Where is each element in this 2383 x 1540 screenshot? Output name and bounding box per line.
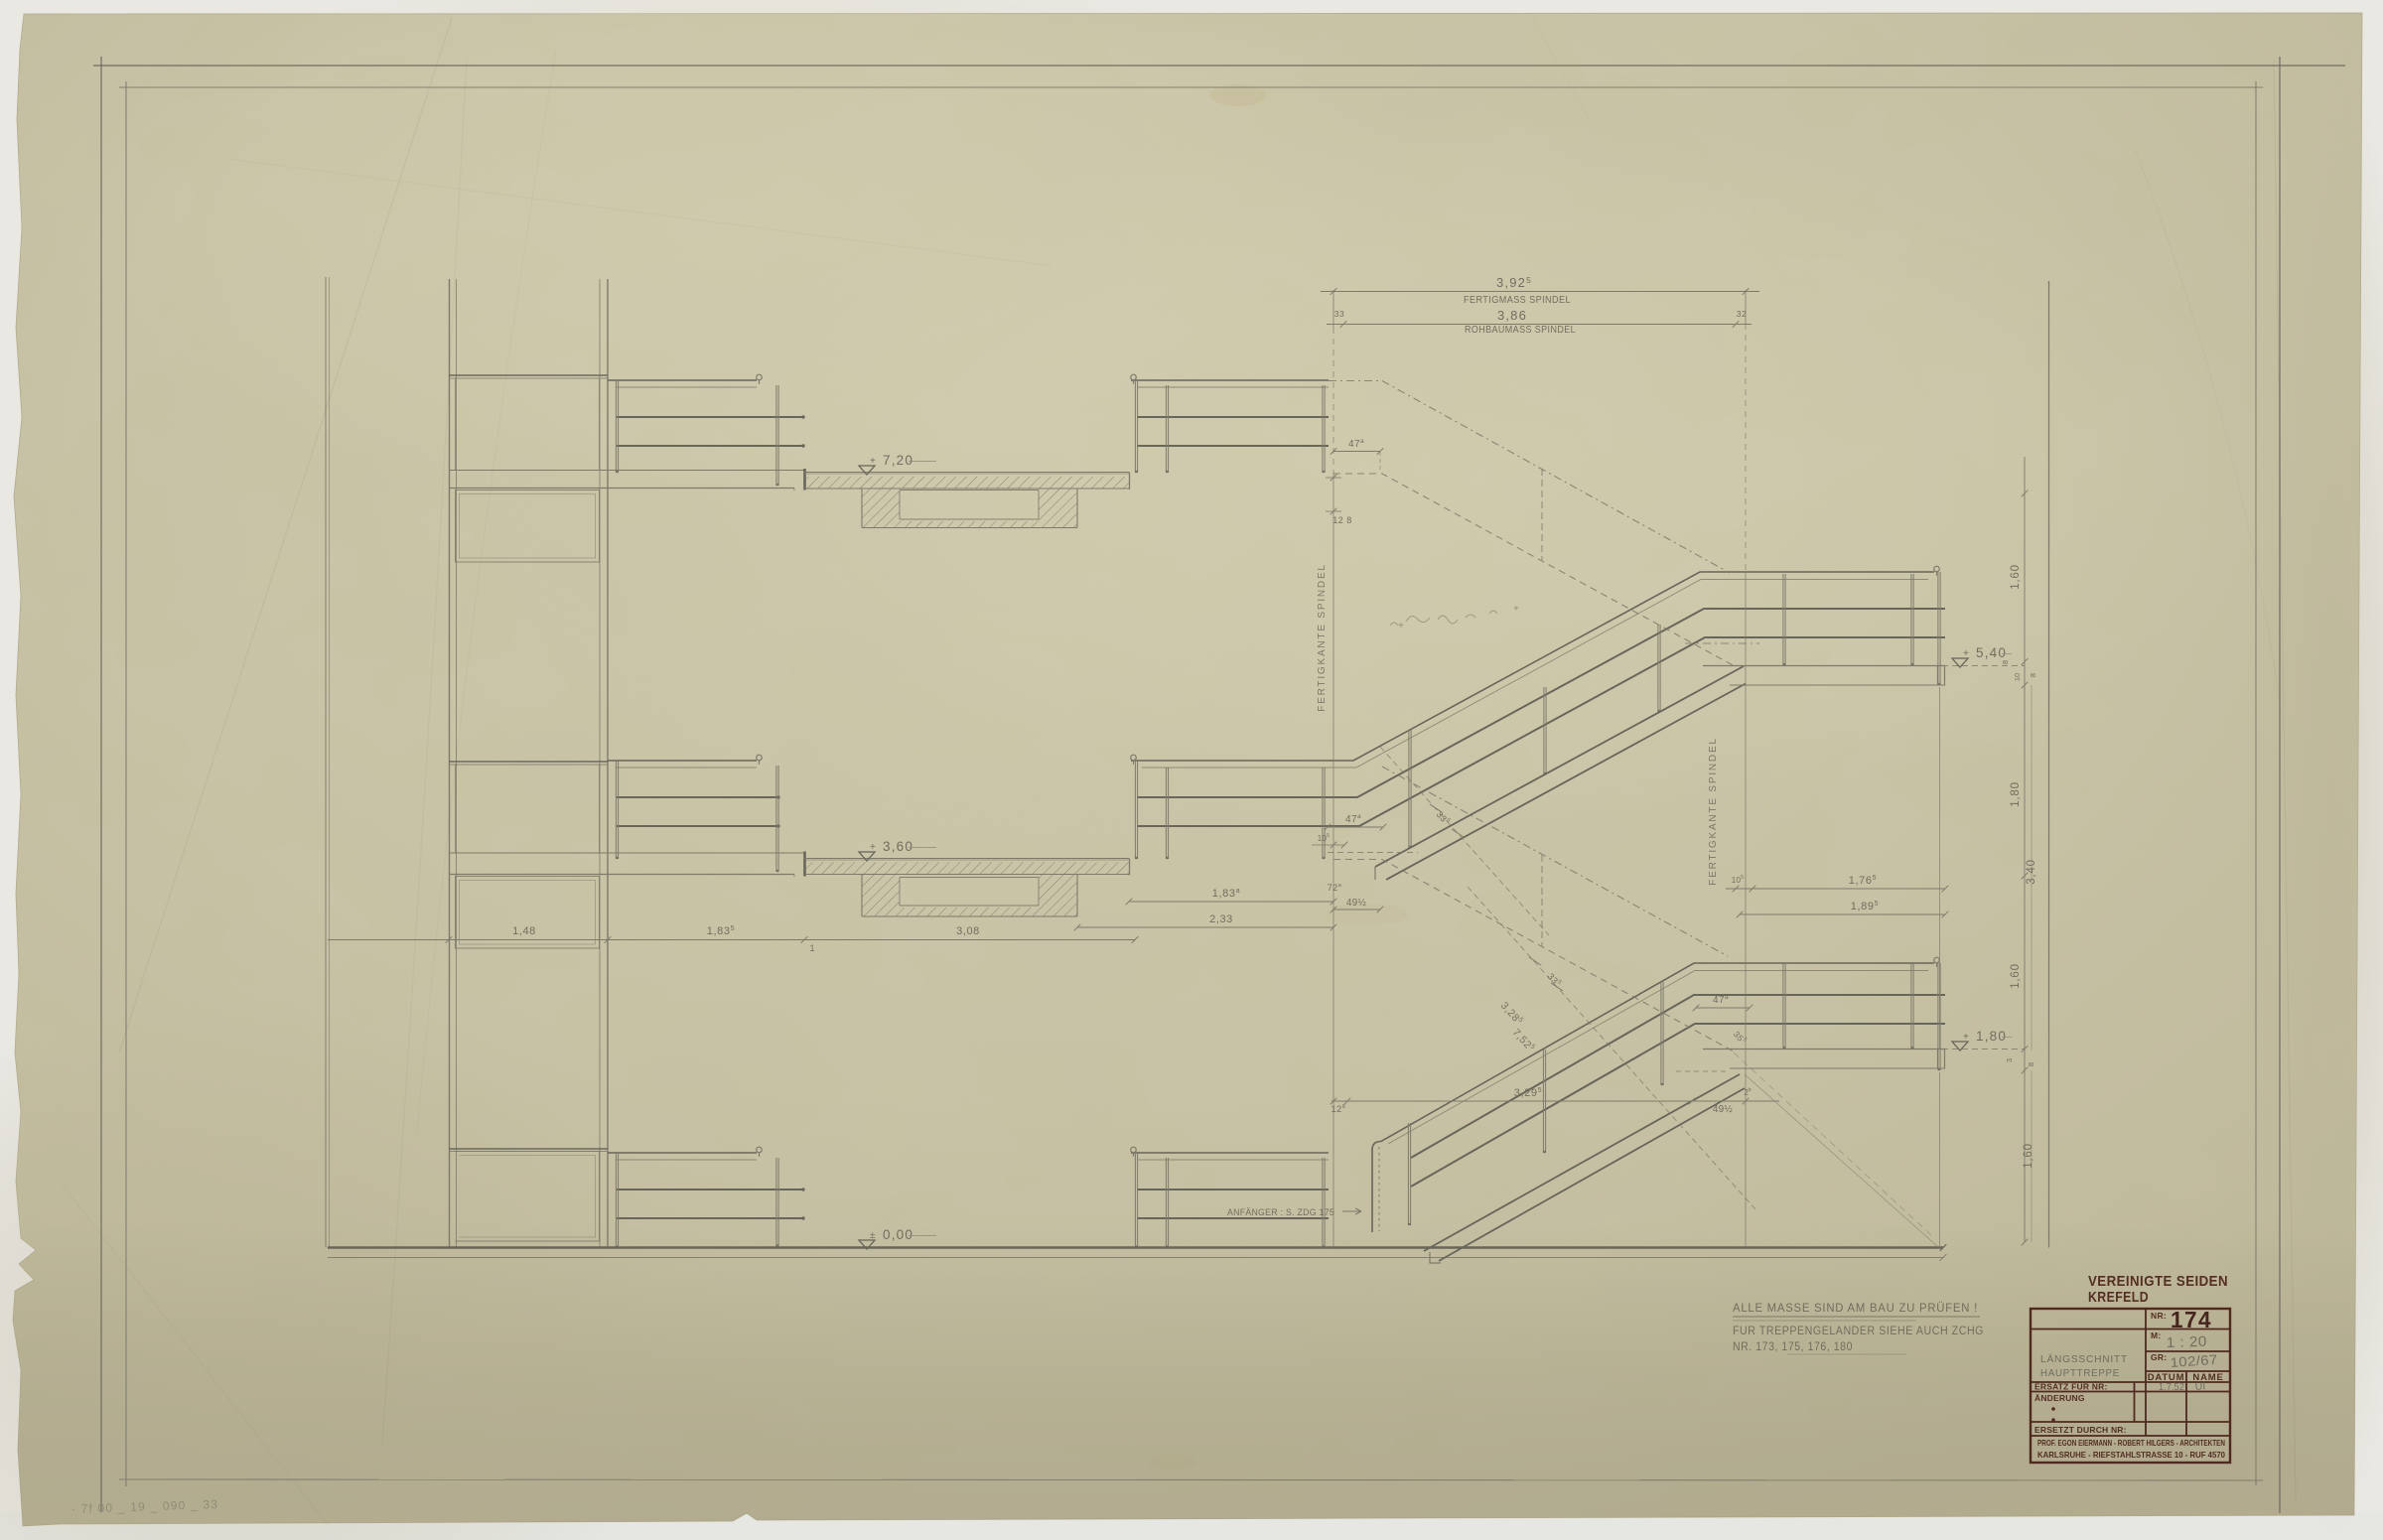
svg-text:ÄNDERUNG: ÄNDERUNG [2034, 1393, 2085, 1403]
svg-text:8: 8 [2029, 673, 2037, 677]
svg-text:2,33: 2,33 [1209, 913, 1233, 925]
svg-text:174: 174 [2171, 1307, 2212, 1332]
svg-text:3: 3 [2005, 1058, 2014, 1062]
svg-text:NR:: NR: [2151, 1311, 2167, 1321]
svg-text:49½: 49½ [1713, 1104, 1734, 1115]
svg-text:NR. 173, 175, 176, 180: NR. 173, 175, 176, 180 [1733, 1341, 1853, 1353]
svg-text:1,60: 1,60 [2023, 1143, 2034, 1169]
svg-text:1,80: 1,80 [1976, 1029, 2007, 1044]
svg-text:FÜR TREPPENGELÄNDER SIEHE AUCH: FÜR TREPPENGELÄNDER SIEHE AUCH ZCHG [1733, 1326, 1984, 1337]
svg-text:KARLSRUHE - RIEFSTAHLSTRASSE: KARLSRUHE - RIEFSTAHLSTRASSE 10 - RUF 45… [2037, 1450, 2225, 1460]
svg-text:Ul: Ul [2194, 1380, 2206, 1393]
svg-text:8: 8 [2001, 660, 2010, 664]
svg-text:3,08: 3,08 [956, 925, 980, 937]
svg-text:10: 10 [2013, 673, 2022, 681]
svg-text:1,60: 1,60 [2010, 564, 2022, 590]
svg-text:GR:: GR: [2151, 1352, 2167, 1362]
svg-text:0,00: 0,00 [883, 1227, 913, 1242]
svg-text:FERTIGMASS SPINDEL: FERTIGMASS SPINDEL [1464, 294, 1571, 306]
svg-text:5,40: 5,40 [1976, 645, 2007, 660]
svg-text:FERTIGKANTE SPINDEL: FERTIGKANTE SPINDEL [1708, 737, 1719, 886]
svg-text:1 : 20: 1 : 20 [2167, 1334, 2208, 1351]
svg-text:LÄNGSSCHNITT: LÄNGSSCHNITT [2040, 1353, 2128, 1365]
svg-text:3,60: 3,60 [883, 839, 913, 854]
svg-text:1,60: 1,60 [2010, 963, 2022, 989]
svg-text:7,20: 7,20 [883, 453, 913, 468]
svg-text:49½: 49½ [1346, 898, 1367, 909]
svg-text:1,48: 1,48 [512, 925, 536, 937]
svg-text:KREFELD: KREFELD [2088, 1289, 2149, 1306]
svg-text:ERSATZ FÜR NR:: ERSATZ FÜR NR: [2034, 1382, 2107, 1392]
svg-text:1: 1 [809, 943, 814, 953]
svg-text:M:: M: [2151, 1330, 2162, 1340]
svg-text:ANFÄNGER : S. ZDG 175: ANFÄNGER : S. ZDG 175 [1227, 1207, 1334, 1218]
svg-text:ALLE MASSE SIND AM BAU ZU PRÜF: ALLE MASSE SIND AM BAU ZU PRÜFEN ! [1733, 1301, 1978, 1315]
svg-text:FERTIGKANTE SPINDEL: FERTIGKANTE SPINDEL [1317, 563, 1328, 712]
svg-text:33: 33 [1334, 309, 1344, 319]
svg-text:12 8: 12 8 [1332, 515, 1352, 525]
svg-text:PROF. EGON EIERMANN - ROBERT H: PROF. EGON EIERMANN - ROBERT HILGERS - A… [2037, 1438, 2225, 1448]
svg-text:+: + [1398, 621, 1404, 631]
svg-text:ERSETZT DURCH NR:: ERSETZT DURCH NR: [2034, 1425, 2127, 1435]
svg-text:8: 8 [2027, 1062, 2035, 1066]
svg-text:VEREINIGTE SEIDEN: VEREINIGTE SEIDEN [2088, 1273, 2228, 1290]
svg-text:32: 32 [1737, 309, 1747, 319]
svg-text:1.7.52: 1.7.52 [2159, 1381, 2184, 1393]
svg-text:1,80: 1,80 [2010, 781, 2022, 807]
svg-text:ROHBAUMASS SPINDEL: ROHBAUMASS SPINDEL [1465, 324, 1576, 336]
svg-text:HAUPTTREPPE: HAUPTTREPPE [2040, 1367, 2120, 1379]
svg-text:3,86: 3,86 [1497, 308, 1527, 323]
svg-text:+: + [1513, 604, 1519, 615]
